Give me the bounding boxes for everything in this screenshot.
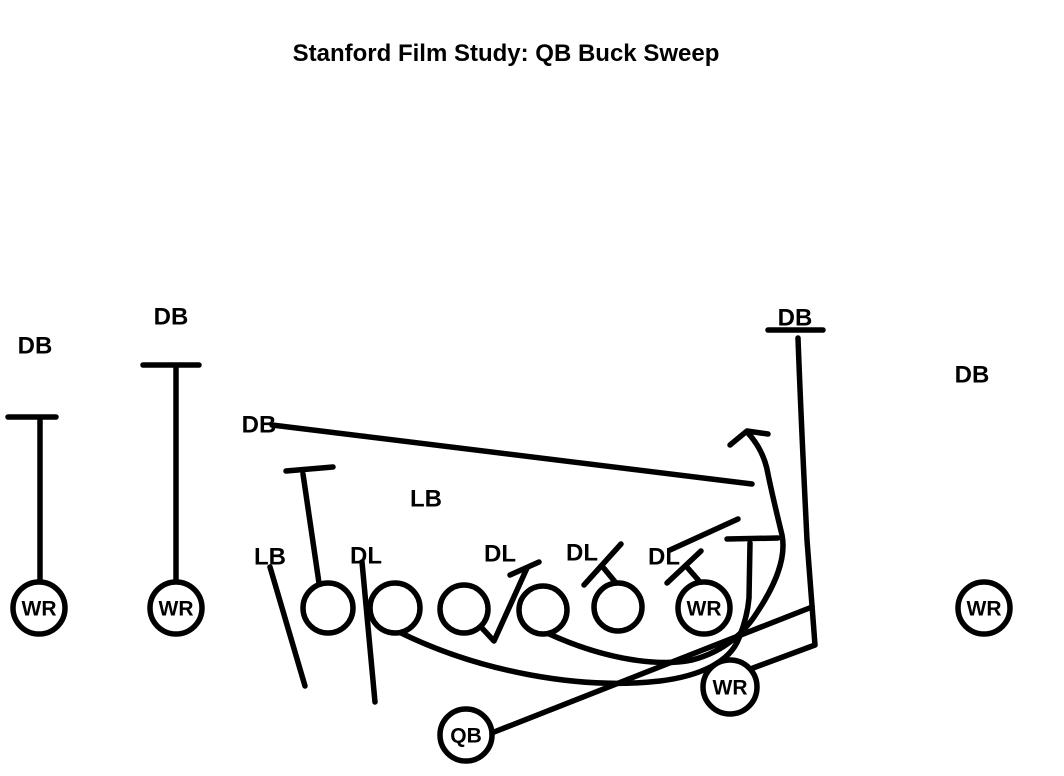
player-wr-far-right: WR xyxy=(958,582,1010,634)
route-edge-diagonal xyxy=(670,519,738,550)
defender-label-dl-4: DL xyxy=(648,544,680,571)
player-ol-guard-left xyxy=(370,583,420,633)
player-circle-ol-tackle-left xyxy=(303,583,353,633)
player-wr-slot-right: WR xyxy=(678,582,730,634)
player-circle-ol-guard-left xyxy=(370,583,420,633)
player-wr-far-left: WR xyxy=(13,582,65,634)
player-wr-wing: WR xyxy=(703,660,757,714)
defender-label-dl-1: DL xyxy=(350,543,382,570)
player-wr-left: WR xyxy=(150,582,202,634)
play-diagram-canvas: Stanford Film Study: QB Buck Sweep WRWRW… xyxy=(0,0,1064,776)
route-lb-left-flow xyxy=(270,567,305,686)
route-wr-left-stalk-block xyxy=(143,365,199,582)
player-label-wr-far-right: WR xyxy=(967,598,1002,621)
defender-label-lb-middle: LB xyxy=(410,486,442,513)
player-label-wr-left: WR xyxy=(159,598,194,621)
play-diagram: WRWRWRWRQBWRDBDBDBDBDBLBLBDLDLDLDL xyxy=(0,0,1064,776)
player-ol-guard-right xyxy=(519,586,567,634)
defender-label-db-middle: DB xyxy=(242,412,277,439)
route-ol-tackle-left-climb-block xyxy=(286,467,333,583)
defender-label-dl-3: DL xyxy=(566,540,598,567)
player-circle-ol-center xyxy=(440,585,488,633)
defender-label-db-far-left: DB xyxy=(18,333,53,360)
player-label-qb: QB xyxy=(450,725,482,748)
defender-label-db-left: DB xyxy=(154,304,189,331)
route-wr-far-left-stalk-block xyxy=(8,417,56,582)
defender-label-dl-2: DL xyxy=(484,541,516,568)
defender-label-lb-left: LB xyxy=(254,544,286,571)
player-circle-ol-tackle-right xyxy=(594,583,642,631)
player-circle-ol-guard-right xyxy=(519,586,567,634)
player-ol-tackle-right xyxy=(594,583,642,631)
player-qb: QB xyxy=(440,709,492,761)
player-ol-center xyxy=(440,585,488,633)
player-label-wr-wing: WR xyxy=(713,677,748,700)
player-label-wr-slot-right: WR xyxy=(687,598,722,621)
player-ol-tackle-left xyxy=(303,583,353,633)
player-label-wr-far-left: WR xyxy=(22,598,57,621)
route-db-middle-pursuit xyxy=(272,425,752,484)
route-dl-1-penetration xyxy=(362,562,375,702)
defender-label-db-top-right: DB xyxy=(778,305,813,332)
defender-label-db-far-right: DB xyxy=(955,362,990,389)
